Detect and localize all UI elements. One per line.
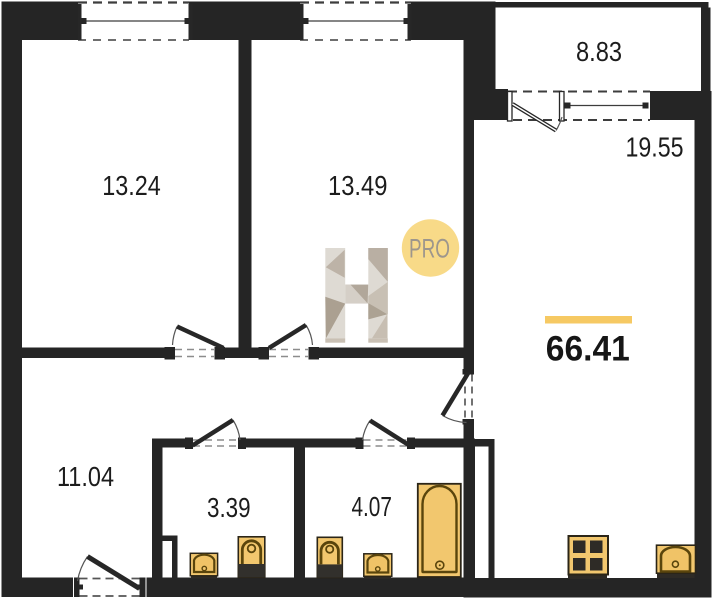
svg-text:11.04: 11.04 [57, 461, 114, 492]
svg-text:4.07: 4.07 [351, 491, 392, 522]
svg-text:3.39: 3.39 [207, 492, 251, 523]
svg-text:13.49: 13.49 [328, 170, 387, 201]
svg-text:19.55: 19.55 [626, 132, 684, 163]
svg-text:66.41: 66.41 [546, 330, 630, 369]
svg-text:13.24: 13.24 [102, 170, 161, 201]
svg-text:PRO: PRO [409, 234, 450, 264]
svg-text:8.83: 8.83 [576, 36, 622, 67]
